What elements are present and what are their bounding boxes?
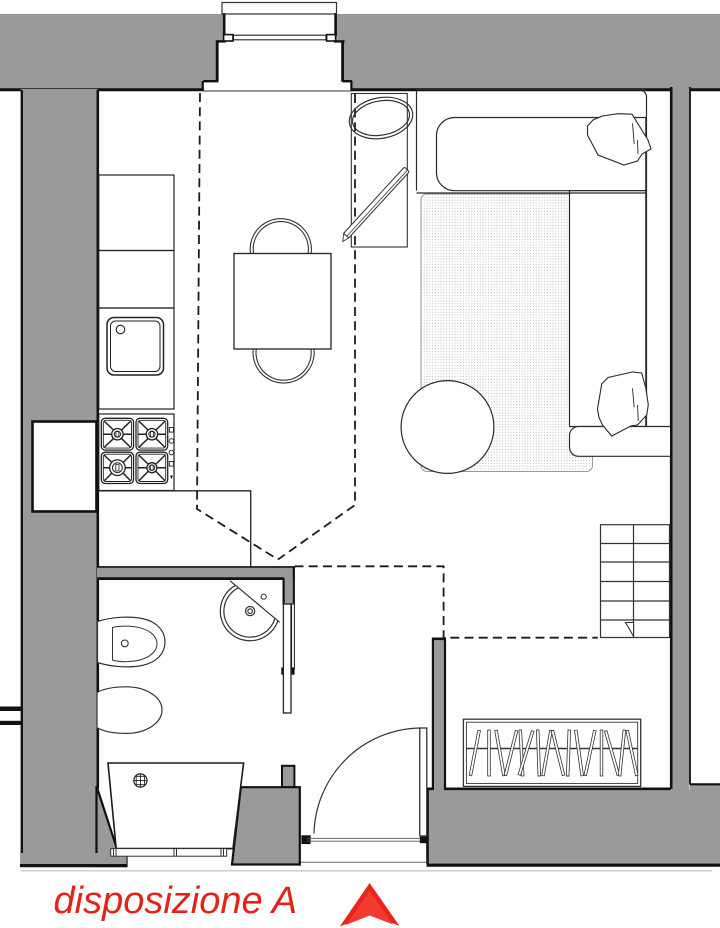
svg-text:disposizione A: disposizione A [54, 880, 298, 922]
